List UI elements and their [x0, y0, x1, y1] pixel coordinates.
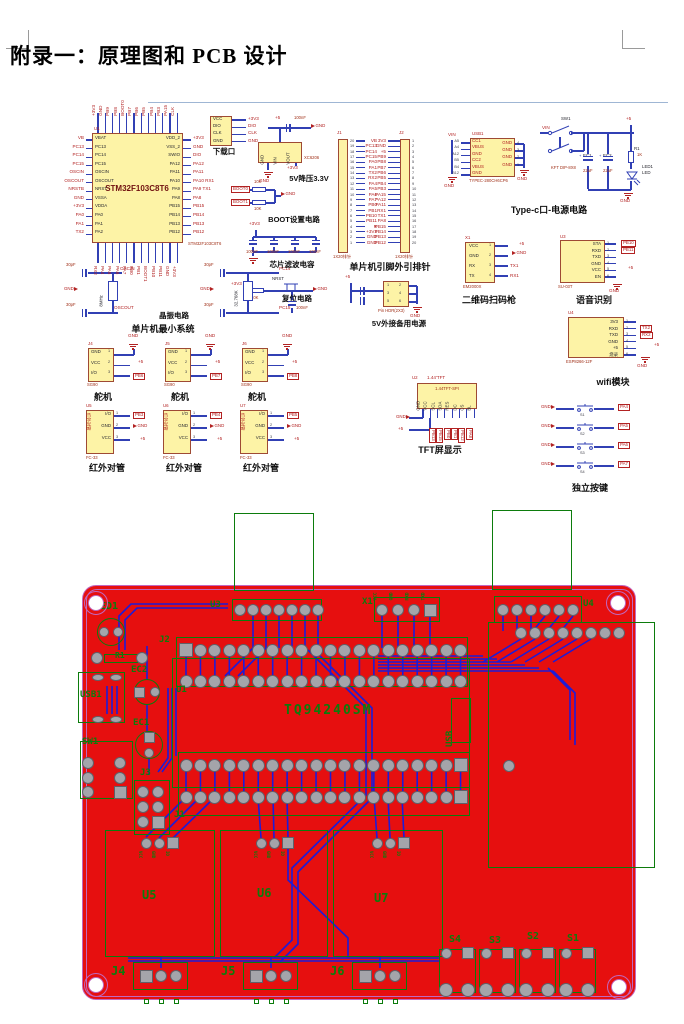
pcb-pad [462, 947, 474, 959]
silkscreen-label: EC1 [133, 719, 149, 728]
silkscreen-label: GND [391, 592, 396, 600]
pcb-pad [501, 983, 515, 997]
pcb-pad [542, 947, 554, 959]
pcb-pad [208, 675, 221, 688]
silkscreen-label: TXD [423, 592, 428, 600]
pcb-pad [559, 983, 573, 997]
pcb-pad [92, 716, 104, 723]
pcb-pad [137, 801, 149, 813]
pcb-pad [223, 759, 236, 772]
pin-outline [393, 999, 398, 1004]
pcb-pad [144, 748, 154, 758]
pcb-pad [282, 837, 294, 849]
pcb-pad [425, 759, 438, 772]
pcb-pad [454, 644, 467, 657]
pcb-pad [114, 786, 127, 799]
document-page: 附录一：原理图和 PCB 设计 U1STM32F103C8T6STM32F103… [0, 0, 684, 1024]
pcb-pad [425, 675, 438, 688]
pcb-pad [223, 675, 236, 688]
pcb-pad [338, 675, 351, 688]
pcb-pad [324, 644, 337, 657]
silkscreen-label: U4 [583, 600, 594, 609]
pin-outline [269, 999, 274, 1004]
pcb-pad [144, 732, 155, 743]
pcb-pad [519, 983, 533, 997]
pcb-pad [252, 675, 265, 688]
silkscreen-label: U1 [176, 686, 187, 695]
pcb-pad [266, 644, 279, 657]
pcb-pad [338, 644, 351, 657]
pcb-pad [237, 644, 250, 657]
pcb-pad [324, 791, 337, 804]
pcb-pad [461, 983, 475, 997]
pcb-pad [152, 786, 164, 798]
pcb-pad [324, 759, 337, 772]
silkscreen-outline [492, 510, 572, 590]
pcb-pad [180, 759, 193, 772]
pcb-pad [265, 970, 277, 982]
pcb-pad [599, 627, 611, 639]
pcb-pad [194, 759, 207, 772]
pcb-pad [266, 675, 279, 688]
silkscreen-label: RXD [407, 592, 412, 600]
pcb-pad [338, 759, 351, 772]
pcb-pad [511, 604, 523, 616]
pin-outline [284, 999, 289, 1004]
pcb-pad [150, 687, 160, 697]
pcb-pad [252, 791, 265, 804]
pcb-pad [529, 627, 541, 639]
pcb-pad [411, 675, 424, 688]
pcb-pad [367, 644, 380, 657]
pcb-pad [367, 759, 380, 772]
pcb-pad [359, 970, 372, 983]
pcb-pad [152, 816, 165, 829]
pcb-pad [194, 675, 207, 688]
pcb-pad [208, 644, 221, 657]
silkscreen-label: S4 [449, 935, 461, 945]
pin-outline [174, 999, 179, 1004]
silkscreen-label: VCC [375, 592, 380, 600]
pcb-pad [154, 838, 165, 849]
pcb-pad [91, 652, 103, 664]
pcb-pad [266, 759, 279, 772]
silkscreen-label: IO [280, 851, 284, 856]
pcb-pad [137, 786, 149, 798]
pcb-pad [114, 772, 126, 784]
pcb-pad [137, 816, 149, 828]
pcb-pad [223, 791, 236, 804]
pcb-pad [353, 759, 366, 772]
silkscreen-label: IO [165, 851, 169, 856]
pcb-pad [152, 801, 164, 813]
silkscreen-label: S2 [527, 932, 539, 942]
pin-outline [378, 999, 383, 1004]
pcb-pad [398, 837, 410, 849]
pcb-pad [353, 791, 366, 804]
pcb-pad [273, 604, 285, 616]
pcb-pad [286, 604, 298, 616]
pcb-pad [170, 970, 182, 982]
pcb-pad [252, 759, 265, 772]
pcb-pad [408, 604, 420, 616]
pcb-pad [312, 604, 324, 616]
silkscreen-label: U7 [374, 892, 388, 904]
pcb-pad [479, 983, 493, 997]
silkscreen-label: J5 [221, 965, 235, 977]
pcb-pad [441, 948, 452, 959]
pcb-pad [260, 604, 272, 616]
pcb-pad [180, 791, 193, 804]
silkscreen-label: J4 [111, 965, 125, 977]
pcb-pad [553, 604, 565, 616]
pcb-pad [541, 983, 555, 997]
pcb-figure: U3X1U4J2U1USBTQ94240SMSW1J3J1LED1R1USB1E… [0, 0, 684, 1024]
pcb-pad [396, 791, 409, 804]
pcb-pad [440, 791, 453, 804]
pcb-pad [167, 837, 179, 849]
pcb-pad [425, 791, 438, 804]
pcb-pad [581, 983, 595, 997]
pcb-pad [281, 791, 294, 804]
silkscreen-label: VCC [369, 851, 373, 858]
mounting-hole [88, 595, 104, 611]
silkscreen-outline [234, 513, 314, 591]
pcb-pad [237, 759, 250, 772]
pcb-pad [543, 627, 555, 639]
pcb-pad [424, 604, 437, 617]
pcb-pad [497, 604, 509, 616]
pcb-pad [503, 760, 515, 772]
mounting-hole [88, 977, 104, 993]
pcb-pad [295, 791, 308, 804]
pcb-pad [585, 627, 597, 639]
pcb-pad [114, 757, 126, 769]
pcb-pad [385, 838, 396, 849]
silkscreen-label: USB1 [80, 691, 102, 700]
pcb-pad [440, 644, 453, 657]
silkscreen-label: S1 [567, 934, 579, 944]
silkscreen-label: IO [396, 851, 400, 856]
pcb-pad [557, 627, 569, 639]
silkscreen-label: J3 [140, 769, 151, 778]
pcb-pad [525, 604, 537, 616]
pcb-pad [353, 644, 366, 657]
silkscreen-outline [488, 622, 655, 868]
pcb-pad [392, 604, 404, 616]
pcb-pad [382, 675, 395, 688]
silkscreen-label: J6 [330, 965, 344, 977]
pcb-pad [281, 675, 294, 688]
pcb-pad [310, 759, 323, 772]
silkscreen-label: U6 [257, 887, 271, 899]
pcb-pad [411, 759, 424, 772]
pcb-pad [250, 970, 263, 983]
pcb-pad [396, 644, 409, 657]
silkscreen-outline [105, 830, 215, 957]
pcb-pad [113, 627, 123, 637]
pcb-pad [567, 604, 579, 616]
silkscreen-label: GND [151, 851, 155, 858]
pcb-pad [295, 759, 308, 772]
pcb-pad [440, 675, 453, 688]
silkscreen-label: SW1 [82, 738, 98, 747]
pcb-pad [310, 644, 323, 657]
pin-outline [159, 999, 164, 1004]
pcb-pad [396, 759, 409, 772]
pcb-pad [310, 791, 323, 804]
pcb-pad [571, 627, 583, 639]
pcb-pad [324, 675, 337, 688]
pcb-pad [439, 983, 453, 997]
pcb-pad [256, 838, 267, 849]
pcb-pad [613, 627, 625, 639]
pcb-pad [281, 759, 294, 772]
pcb-pad [515, 627, 527, 639]
pcb-pad [110, 716, 122, 723]
pcb-pad [208, 791, 221, 804]
pcb-pad [237, 675, 250, 688]
silkscreen-label: U3 [210, 601, 221, 610]
silkscreen-label: X1 [362, 598, 373, 607]
pcb-pad [299, 604, 311, 616]
pcb-pad [310, 675, 323, 688]
pcb-pad [389, 970, 401, 982]
pcb-pad [338, 791, 351, 804]
pcb-pad [372, 838, 383, 849]
pcb-pad [134, 687, 145, 698]
pcb-pad [411, 791, 424, 804]
pcb-pad [281, 644, 294, 657]
pcb-pad [295, 644, 308, 657]
mounting-hole [611, 979, 627, 995]
pin-outline [144, 999, 149, 1004]
pcb-pad [425, 644, 438, 657]
pcb-pad [280, 970, 292, 982]
pcb-pad [252, 644, 265, 657]
pcb-pad [110, 674, 122, 681]
pcb-pad [376, 604, 388, 616]
pcb-pad [502, 947, 514, 959]
pcb-pad [396, 675, 409, 688]
pcb-pad [82, 757, 94, 769]
pcb-pad [539, 604, 551, 616]
pin-outline [363, 999, 368, 1004]
pcb-pad [208, 759, 221, 772]
silkscreen-label: USB [446, 731, 455, 747]
pcb-pad [582, 947, 594, 959]
silkscreen-label: TQ94240SM [284, 704, 372, 717]
pcb-pad [367, 675, 380, 688]
pcb-pad [367, 791, 380, 804]
silkscreen-label: J2 [159, 636, 170, 645]
pcb-pad [140, 970, 153, 983]
pcb-pad [382, 791, 395, 804]
silkscreen-label: S3 [489, 936, 501, 946]
mounting-hole [610, 595, 626, 611]
pcb-pad [136, 652, 148, 664]
pcb-pad [454, 790, 468, 804]
pcb-pad [141, 838, 152, 849]
silkscreen-label: U5 [142, 889, 156, 901]
pcb-pad [99, 627, 109, 637]
pcb-pad [82, 786, 94, 798]
pcb-pad [155, 970, 167, 982]
silkscreen-label: GND [266, 851, 270, 858]
pcb-pad [266, 791, 279, 804]
pin-outline [254, 999, 259, 1004]
pcb-pad [194, 791, 207, 804]
pcb-pad [234, 604, 246, 616]
silkscreen-label: VCC [253, 851, 257, 858]
pcb-pad [481, 948, 492, 959]
pcb-pad [411, 644, 424, 657]
pcb-pad [223, 644, 236, 657]
pcb-pad [561, 948, 572, 959]
pcb-pad [269, 838, 280, 849]
silkscreen-label: VCC [138, 851, 142, 858]
pcb-pad [382, 759, 395, 772]
pcb-pad [295, 675, 308, 688]
silkscreen-label: J1 [174, 811, 185, 820]
pcb-pad [179, 643, 193, 657]
pcb-pad [521, 948, 532, 959]
pcb-pad [382, 644, 395, 657]
silkscreen-label: R1 [115, 652, 125, 660]
pcb-pad [353, 675, 366, 688]
pcb-pad [247, 604, 259, 616]
silkscreen-outline [220, 830, 328, 957]
pcb-pad [92, 674, 104, 681]
silkscreen-label: EC2 [131, 666, 147, 675]
silkscreen-label: GND [382, 851, 386, 858]
pcb-pad [454, 758, 468, 772]
pcb-pad [237, 791, 250, 804]
pcb-pad [374, 970, 386, 982]
pcb-pad [82, 772, 94, 784]
pcb-pad [194, 644, 207, 657]
pcb-pad [454, 675, 467, 688]
pcb-pad [440, 759, 453, 772]
